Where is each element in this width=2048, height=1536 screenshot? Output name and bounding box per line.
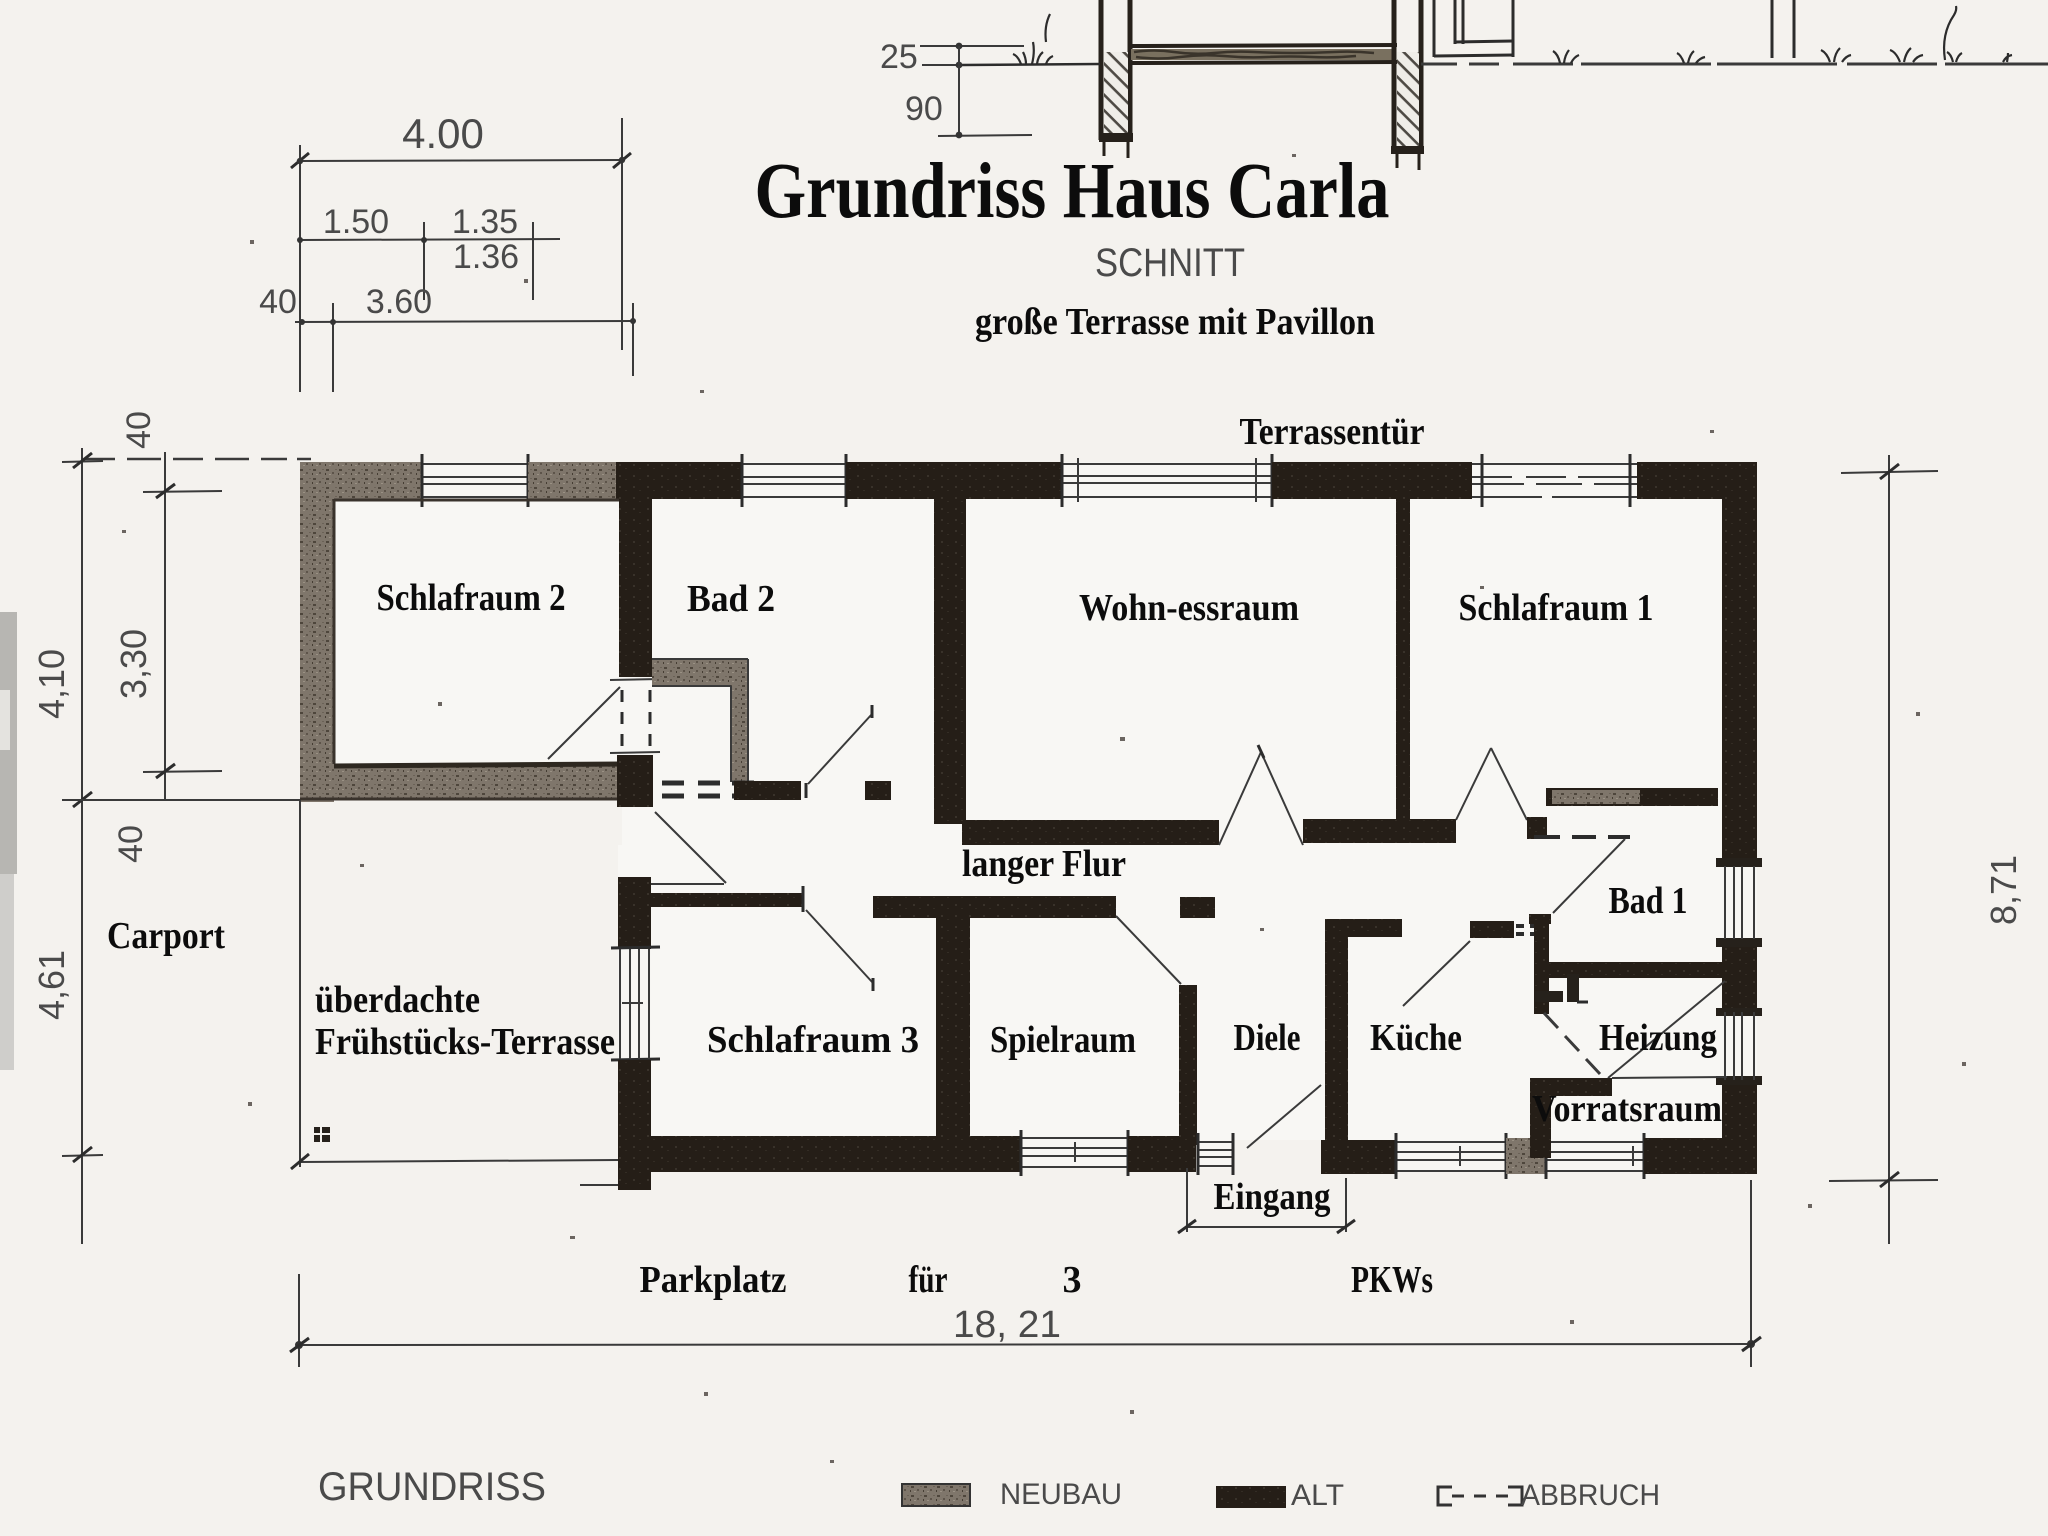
svg-text:Grundriss Haus Carla: Grundriss Haus Carla	[755, 148, 1390, 235]
svg-text:Spielraum: Spielraum	[990, 1019, 1136, 1061]
svg-text:überdachte: überdachte	[315, 979, 480, 1021]
svg-text:Diele: Diele	[1234, 1017, 1301, 1059]
svg-text:3: 3	[1063, 1259, 1082, 1301]
svg-text:90: 90	[905, 90, 943, 128]
svg-text:Schlafraum 1: Schlafraum 1	[1459, 587, 1654, 629]
svg-text:Carport: Carport	[107, 915, 225, 957]
svg-text:Eingang: Eingang	[1214, 1176, 1331, 1218]
svg-text:ABBRUCH: ABBRUCH	[1521, 1479, 1660, 1512]
svg-text:für: für	[909, 1259, 948, 1301]
svg-text:Schlafraum 3: Schlafraum 3	[707, 1019, 919, 1061]
svg-text:1.35: 1.35	[452, 203, 518, 241]
svg-text:40: 40	[259, 283, 297, 321]
svg-text:Heizung: Heizung	[1599, 1017, 1717, 1059]
svg-text:Wohn-essraum: Wohn-essraum	[1079, 587, 1299, 629]
svg-text:SCHNITT: SCHNITT	[1095, 241, 1245, 285]
svg-text:3.60: 3.60	[366, 283, 432, 321]
svg-text:1.36: 1.36	[453, 238, 519, 276]
svg-text:8,71: 8,71	[1983, 855, 2024, 925]
svg-text:langer Flur: langer Flur	[962, 843, 1126, 885]
svg-text:25: 25	[880, 38, 918, 76]
svg-text:Parkplatz: Parkplatz	[640, 1259, 787, 1301]
svg-text:Küche: Küche	[1370, 1017, 1462, 1059]
svg-text:PKWs: PKWs	[1351, 1259, 1433, 1301]
svg-text:Bad 1: Bad 1	[1609, 880, 1688, 922]
svg-text:18, 21: 18, 21	[953, 1304, 1061, 1346]
svg-text:Bad 2: Bad 2	[687, 578, 775, 620]
svg-text:Terrassentür: Terrassentür	[1240, 411, 1425, 453]
svg-text:NEUBAU: NEUBAU	[1000, 1478, 1122, 1511]
svg-text:1.50: 1.50	[323, 203, 389, 241]
svg-text:3,30: 3,30	[113, 629, 154, 699]
svg-text:4.00: 4.00	[402, 110, 484, 157]
svg-text:40: 40	[112, 825, 150, 863]
svg-text:ALT: ALT	[1291, 1479, 1344, 1512]
svg-text:große Terrasse mit Pavillon: große Terrasse mit Pavillon	[975, 301, 1375, 343]
svg-text:Frühstücks-Terrasse: Frühstücks-Terrasse	[315, 1021, 615, 1063]
svg-text:Schlafraum 2: Schlafraum 2	[377, 577, 566, 619]
svg-text:40: 40	[120, 411, 158, 449]
svg-text:4,10: 4,10	[31, 649, 72, 719]
svg-text:4,61: 4,61	[31, 950, 72, 1020]
svg-text:Vorratsraum: Vorratsraum	[1532, 1088, 1722, 1130]
svg-text:GRUNDRISS: GRUNDRISS	[318, 1465, 546, 1509]
